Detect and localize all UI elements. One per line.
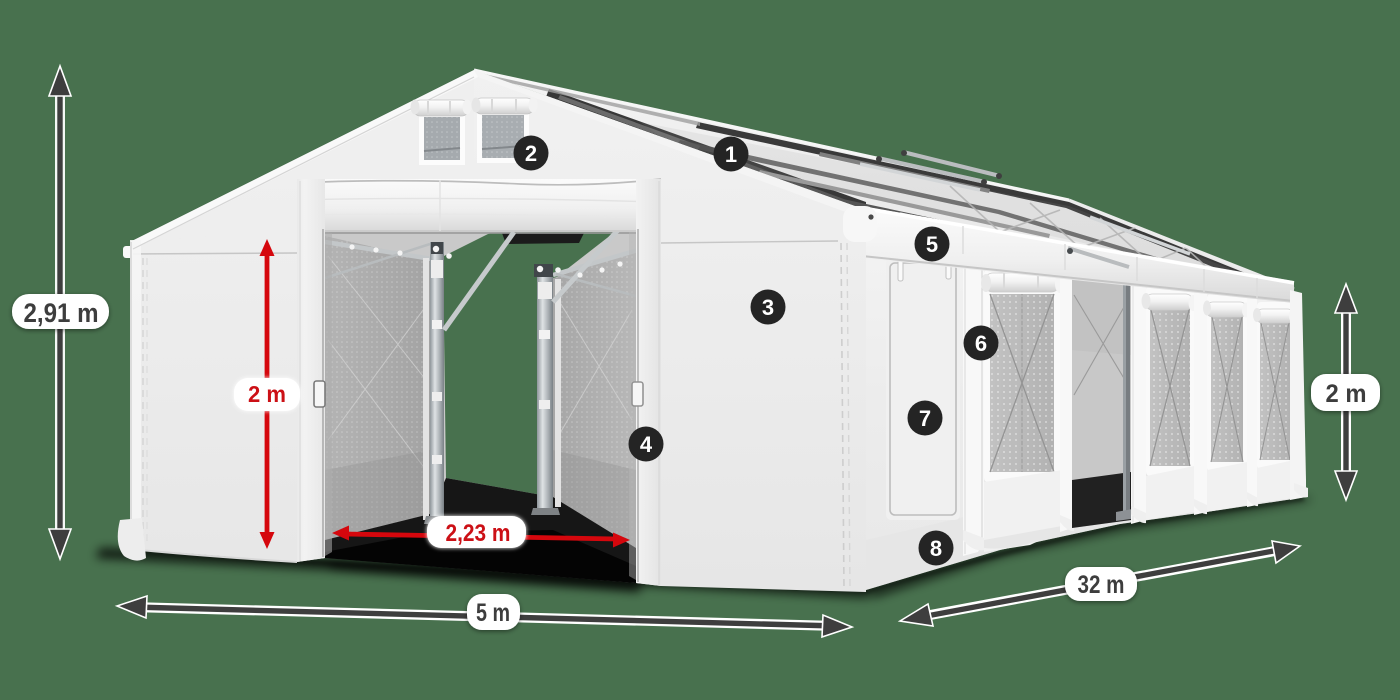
svg-text:2,23 m: 2,23 m [446, 520, 511, 547]
svg-text:5: 5 [926, 232, 938, 257]
svg-text:2 m: 2 m [248, 381, 286, 407]
svg-text:3: 3 [762, 295, 774, 320]
svg-text:6: 6 [975, 331, 987, 356]
svg-text:7: 7 [919, 406, 931, 431]
svg-text:5 m: 5 m [476, 599, 510, 627]
svg-text:2 m: 2 m [1326, 380, 1367, 408]
svg-text:32 m: 32 m [1078, 571, 1125, 599]
svg-text:2,91 m: 2,91 m [24, 298, 99, 328]
svg-text:2: 2 [525, 141, 537, 166]
svg-text:4: 4 [640, 432, 653, 457]
svg-text:8: 8 [930, 536, 942, 561]
svg-text:1: 1 [725, 142, 737, 167]
